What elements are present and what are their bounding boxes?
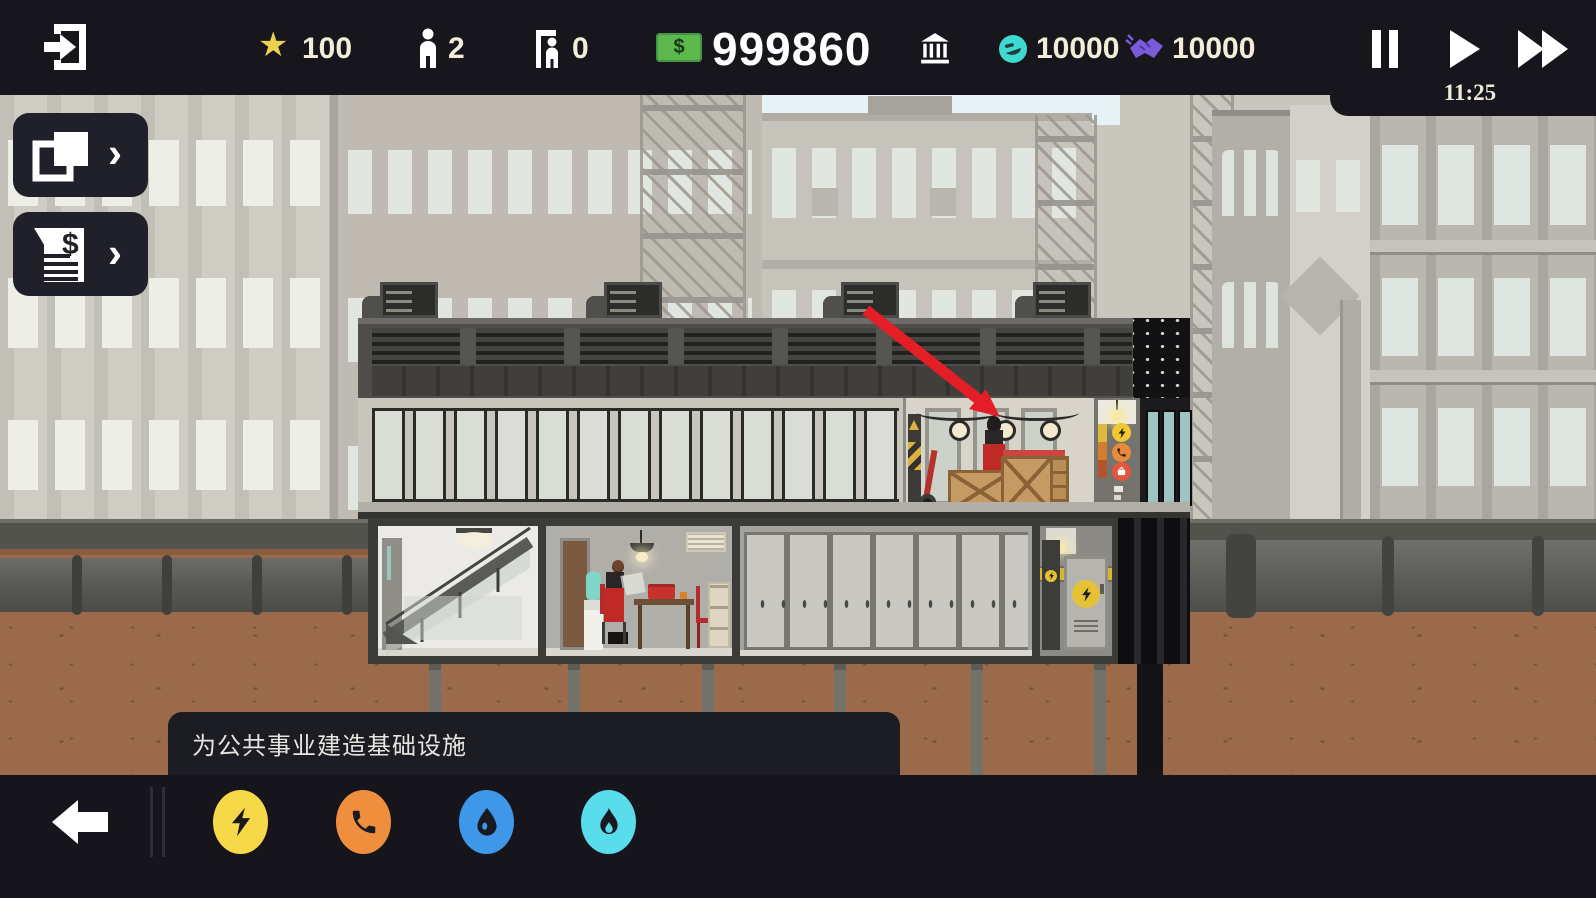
back-button[interactable] — [48, 798, 112, 846]
hanging-lamp — [1040, 420, 1061, 441]
happiness-value: 10000 — [1036, 32, 1119, 66]
electrical-cabinet — [1064, 556, 1108, 650]
roof-ac-unit — [1033, 282, 1091, 318]
support-pillar — [1094, 664, 1106, 775]
roof-ac-unit — [380, 282, 438, 318]
toolbox — [648, 584, 675, 599]
wall-switch — [1114, 486, 1123, 492]
water-cooler-bottle — [586, 572, 601, 600]
bg-pale-windows — [1296, 160, 1372, 212]
desk-leg — [638, 605, 642, 649]
rating-value: 100 — [302, 32, 352, 66]
office-desk — [634, 599, 694, 605]
phone-badge — [1112, 443, 1131, 462]
fast-forward-button[interactable] — [1516, 29, 1570, 69]
pipe-coupling — [1226, 534, 1256, 618]
visitor-icon — [534, 28, 564, 68]
chair-legs — [602, 622, 626, 644]
pipe-ring — [162, 555, 172, 615]
dark-window-slot — [1178, 410, 1192, 506]
money-value: 999860 — [712, 22, 872, 76]
pause-button[interactable] — [1372, 30, 1400, 68]
visitors-value: 0 — [572, 32, 589, 66]
cabinet-bolt-circle — [1072, 580, 1100, 608]
roof-ac-duct — [586, 296, 606, 318]
exit-icon[interactable] — [42, 22, 88, 72]
bg-right-windows-row1 — [1382, 145, 1596, 225]
office-ac-unit — [686, 532, 726, 552]
tower-roof-panels — [372, 366, 1132, 396]
guest-chair — [696, 586, 700, 620]
utility-column[interactable] — [1094, 398, 1140, 515]
support-pillar — [971, 664, 983, 775]
roof-ac-duct — [362, 296, 382, 318]
star-icon: ★ — [258, 30, 288, 60]
pipe-ring — [1532, 536, 1544, 616]
worker-reading-apron — [604, 588, 624, 622]
population-value: 2 — [448, 32, 465, 66]
wall-note — [1114, 495, 1121, 500]
toolbar-divider — [162, 787, 165, 857]
pipe-ring — [1382, 536, 1394, 616]
clock-value: 11:25 — [1430, 80, 1510, 106]
phone-button[interactable] — [336, 790, 391, 854]
file-cabinet — [708, 582, 730, 648]
bg-right-windows-row2 — [1382, 278, 1596, 356]
bg-arched-windows-row2 — [1222, 282, 1280, 348]
tooltip-panel: 为公共事业建造基础设施 — [168, 712, 900, 775]
finance-panel-chevron: › — [108, 232, 122, 274]
toolbar-divider — [150, 787, 153, 857]
bg-midright-bulkhead — [868, 96, 952, 115]
lightning-icon — [228, 804, 254, 840]
hazard-post — [908, 414, 921, 504]
money-dollar-glyph: $ — [673, 36, 684, 59]
meter-strip-phone — [1098, 442, 1107, 460]
invoice-icon: $ — [38, 226, 86, 284]
pipe-ring — [342, 555, 352, 615]
tower-dark-section — [1140, 398, 1190, 515]
water-pipe-left — [0, 558, 372, 612]
hazard-stripes — [908, 442, 921, 470]
dark-window-slot — [1162, 410, 1176, 506]
contracts-value: 10000 — [1172, 32, 1255, 66]
invoice-fold — [34, 228, 46, 248]
newspaper — [620, 572, 645, 596]
bg-right-windows-row3 — [1382, 408, 1596, 486]
invoice-line — [44, 270, 78, 274]
stairwell-art — [378, 526, 538, 656]
office-room[interactable] — [546, 526, 732, 656]
electricity-badge — [1112, 423, 1131, 442]
ceiling-lamp — [640, 530, 642, 544]
meter-strip-electric — [1098, 424, 1107, 442]
desk-leg — [686, 605, 690, 649]
tower-roof-dark-block — [1133, 318, 1190, 398]
ceiling-lamp-shade — [630, 543, 654, 552]
bank-icon[interactable] — [920, 32, 950, 64]
pipe-ring — [252, 555, 262, 615]
invoice-line — [44, 262, 78, 266]
invoice-dollar-glyph: $ — [62, 228, 79, 262]
cabinet-vents — [1074, 618, 1098, 632]
handshake-icon — [1124, 34, 1166, 64]
bg-arched-windows-row1 — [1222, 150, 1280, 216]
foundation-slats — [1118, 518, 1190, 664]
panel-bolt-badge — [1045, 570, 1057, 582]
roof-ac-duct — [1015, 296, 1035, 318]
water-drop-icon — [471, 803, 503, 841]
stairwell-room[interactable] — [378, 526, 538, 656]
red-arrow-annotation — [852, 302, 1012, 426]
pause-bar — [1389, 30, 1398, 68]
meter-strip-cable — [1098, 460, 1107, 478]
elec-dark-panel — [1042, 540, 1060, 650]
lobby-windows[interactable] — [372, 408, 899, 502]
gas-button[interactable] — [581, 790, 636, 854]
money-icon: $ — [656, 33, 702, 62]
pause-bar — [1372, 30, 1381, 68]
rooms-panel-chevron: › — [108, 132, 122, 174]
rooftop-sign-pole — [1340, 300, 1361, 520]
water-button[interactable] — [459, 790, 514, 854]
roof-ac-duct — [823, 296, 843, 318]
foundation-pillar — [1137, 664, 1163, 775]
lamp-glow — [636, 552, 648, 562]
light-bulb-icon — [1111, 410, 1123, 422]
electrical-room[interactable] — [1040, 526, 1112, 656]
storage-room[interactable] — [740, 526, 1032, 656]
phone-icon — [349, 807, 379, 837]
dark-window-slot — [1146, 410, 1160, 506]
person-icon — [416, 28, 440, 68]
invoice-line — [44, 277, 78, 281]
pipe-ring — [72, 555, 82, 615]
bg-left-seam — [330, 95, 338, 525]
tooltip-text: 为公共事业建造基础设施 — [168, 726, 467, 761]
cabinet-handle — [1100, 584, 1104, 594]
play-button[interactable] — [1448, 29, 1480, 69]
happiness-icon — [998, 34, 1028, 64]
tower-roof-louvers — [372, 328, 1132, 364]
electricity-button[interactable] — [213, 790, 268, 854]
bg-right-ledge2 — [1370, 370, 1596, 382]
bg-right-ledge1 — [1370, 240, 1596, 252]
bg-midright-ac-units — [812, 188, 1044, 216]
layers-icon — [32, 128, 94, 184]
roof-ac-unit — [604, 282, 662, 318]
bg-left-windows-row3 — [8, 420, 326, 490]
cable-tv-badge — [1112, 462, 1131, 481]
game-screen: 为公共事业建造基础设施 ★ 100 2 — [0, 0, 1596, 898]
gas-flame-icon — [593, 803, 625, 841]
panel-screws — [744, 576, 1028, 632]
